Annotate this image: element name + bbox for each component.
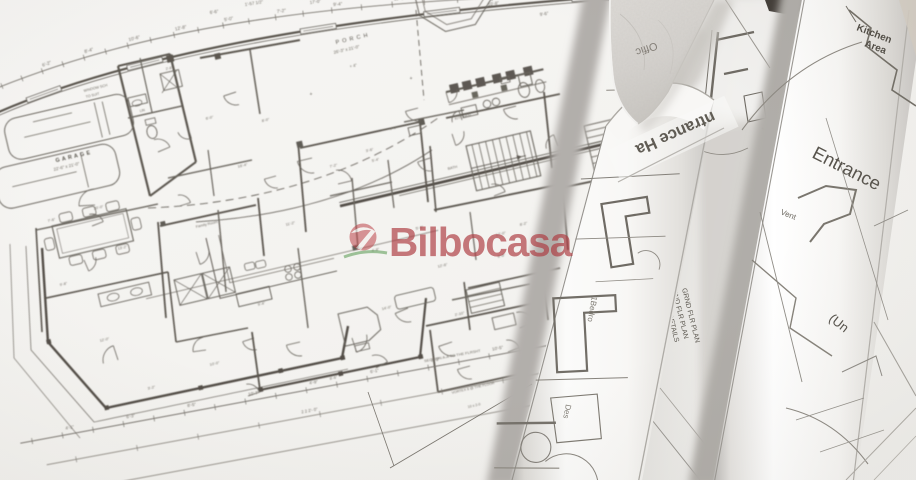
svg-text:Bilbocasa: Bilbocasa <box>389 219 573 265</box>
